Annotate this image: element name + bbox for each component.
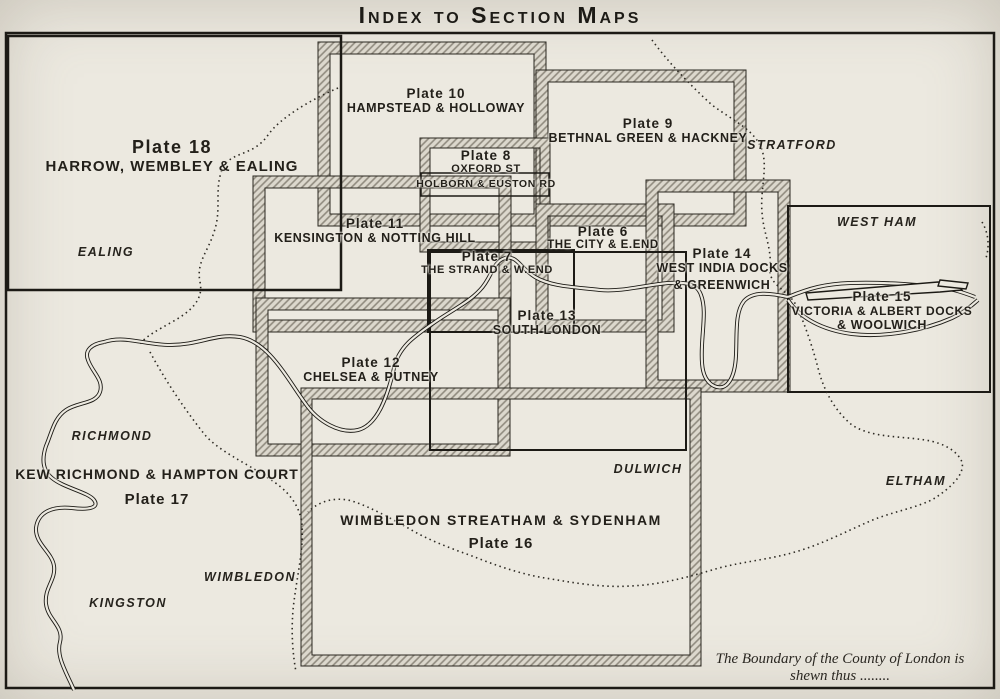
- plate-17-label: KEW RICHMOND & HAMPTON COURT Plate 17: [15, 466, 299, 508]
- plate-13-name: SOUTH LONDON: [493, 323, 602, 337]
- plate-8-label: Plate 8 OXFORD ST HOLBORN & EUSTON RD: [416, 148, 556, 190]
- index-map-sheet: Index to Section Maps: [0, 0, 1000, 699]
- place-label-wimbledon: WIMBLEDON: [204, 570, 296, 584]
- plate-8-name2: HOLBORN & EUSTON RD: [416, 178, 556, 190]
- plate-17-number: Plate 17: [15, 491, 299, 508]
- plate-13-number: Plate 13: [493, 308, 602, 323]
- boundary-note-line1: The Boundary of the County of London is: [690, 651, 990, 668]
- plate-18-number: Plate 18: [46, 137, 299, 158]
- plate-15-name2: & WOOLWICH: [792, 318, 973, 332]
- plate-14-name2: & GREENWICH: [656, 278, 787, 292]
- place-label-west-ham: WEST HAM: [837, 215, 917, 229]
- plate-18-label: Plate 18 HARROW, WEMBLEY & EALING: [46, 137, 299, 175]
- place-label-stratford: STRATFORD: [747, 138, 837, 152]
- plate-10-name: HAMPSTEAD & HOLLOWAY: [347, 101, 525, 115]
- plate-14-label: Plate 14 WEST INDIA DOCKS & GREENWICH: [656, 246, 787, 292]
- plate-10-rect: [318, 42, 546, 226]
- plate-7-number: Plate 7: [421, 249, 553, 264]
- plate-14-number: Plate 14: [656, 246, 787, 261]
- plate-6-number: Plate 6: [547, 224, 659, 239]
- plate-6-name: THE CITY & E.END: [547, 239, 659, 251]
- place-label-richmond: RICHMOND: [72, 429, 153, 443]
- plate-11-label: Plate 11 KENSINGTON & NOTTING HILL: [274, 216, 476, 245]
- plate-9-name: BETHNAL GREEN & HACKNEY: [549, 131, 748, 145]
- plate-8-number: Plate 8: [416, 148, 556, 163]
- plate-7-label: Plate 7 THE STRAND & W.END: [421, 249, 553, 276]
- place-label-dulwich: DULWICH: [614, 462, 683, 476]
- boundary-note-line2: shewn thus ........: [690, 668, 990, 685]
- plate-9-number: Plate 9: [549, 116, 748, 131]
- plate-11-name: KENSINGTON & NOTTING HILL: [274, 231, 476, 245]
- plate-12-label: Plate 12 CHELSEA & PUTNEY: [303, 355, 439, 384]
- plate-12-number: Plate 12: [303, 355, 439, 370]
- plate-8-name: OXFORD ST: [416, 163, 556, 175]
- plate-16-number: Plate 16: [340, 535, 662, 552]
- place-label-ealing: EALING: [78, 245, 134, 259]
- plate-18-name: HARROW, WEMBLEY & EALING: [46, 158, 299, 175]
- plate-14-name: WEST INDIA DOCKS: [656, 261, 787, 275]
- plate-9-rect: [536, 70, 746, 226]
- plate-12-name: CHELSEA & PUTNEY: [303, 370, 439, 384]
- plate-17-name: KEW RICHMOND & HAMPTON COURT: [15, 466, 299, 482]
- plate-15-number: Plate 15: [792, 289, 973, 304]
- plate-15-name: VICTORIA & ALBERT DOCKS: [792, 304, 973, 318]
- plate-9-label: Plate 9 BETHNAL GREEN & HACKNEY: [549, 116, 748, 145]
- place-label-eltham: ELTHAM: [886, 474, 946, 488]
- plate-16-label: WIMBLEDON STREATHAM & SYDENHAM Plate 16: [340, 512, 662, 552]
- plate-6-label: Plate 6 THE CITY & E.END: [547, 224, 659, 251]
- plate-7-name: THE STRAND & W.END: [421, 264, 553, 276]
- plate-15-label: Plate 15 VICTORIA & ALBERT DOCKS & WOOLW…: [792, 289, 973, 332]
- plate-11-number: Plate 11: [274, 216, 476, 231]
- place-label-kingston: KINGSTON: [89, 596, 167, 610]
- plate-10-label: Plate 10 HAMPSTEAD & HOLLOWAY: [347, 86, 525, 115]
- boundary-note: The Boundary of the County of London is …: [690, 651, 990, 686]
- plate-13-label: Plate 13 SOUTH LONDON: [493, 308, 602, 337]
- plate-16-name: WIMBLEDON STREATHAM & SYDENHAM: [340, 512, 662, 528]
- plate-10-number: Plate 10: [347, 86, 525, 101]
